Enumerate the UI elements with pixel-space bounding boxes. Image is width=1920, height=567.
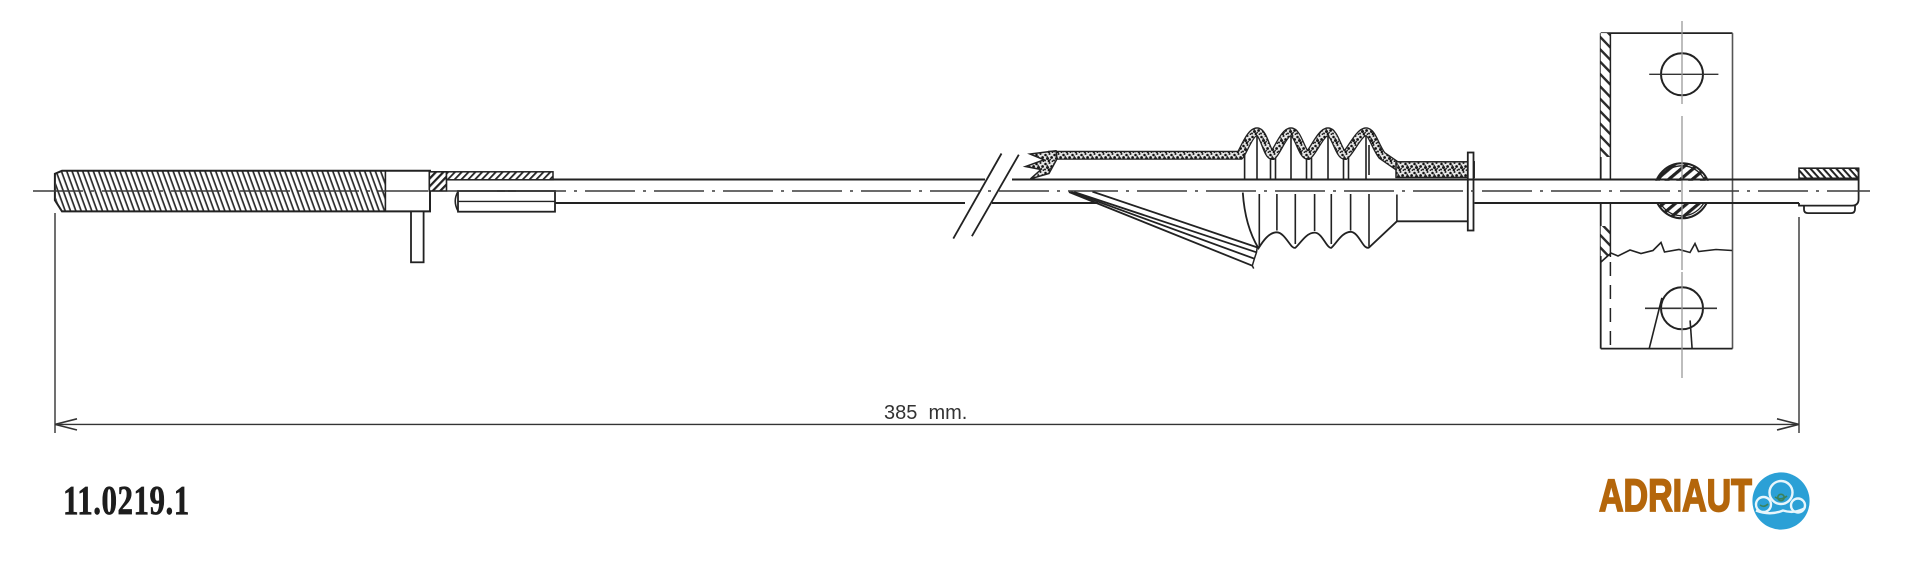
svg-text:ADRIAUT: ADRIAUT	[1599, 470, 1752, 521]
svg-text:11.0219.1: 11.0219.1	[63, 477, 190, 524]
svg-text:385 mm.: 385 mm.	[884, 402, 967, 424]
